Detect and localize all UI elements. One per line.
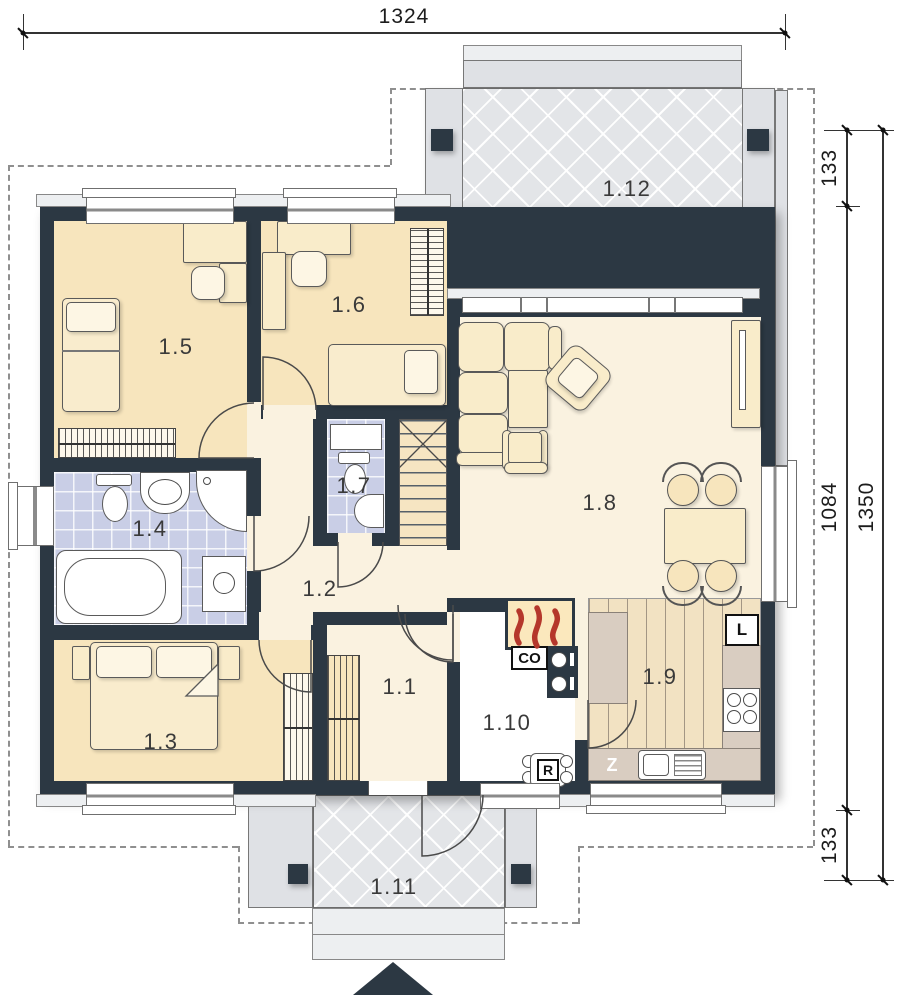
chimney-fireplace [505,598,575,650]
passage-living [447,550,460,598]
dimension-house-depth: 1084 [818,482,842,533]
sofa-cushion [458,322,504,372]
nightstand [72,646,90,680]
fridge-box: L [725,614,759,646]
room-label-1-9: 1.9 [642,664,677,690]
window-lip [787,460,797,608]
window-lip [82,805,236,815]
porch-pillar [511,864,531,884]
window-lip [586,805,726,814]
window-bedroom-1-5 [86,196,234,224]
room-label-1-5: 1.5 [158,334,193,360]
door-gap [259,612,311,640]
cooktop-burner [743,710,757,724]
door-gap [263,405,316,419]
nightstand [218,646,240,680]
terrace-pillar [431,129,453,151]
stairs [399,419,447,546]
fridge-label: L [737,620,747,640]
dimension-line-right-outer [882,130,884,880]
room-label-1-2: 1.2 [302,576,337,602]
window-bathroom-1-4 [16,486,54,546]
window-mullion [648,297,650,313]
porch-step [312,934,505,960]
dining-chair [705,474,737,506]
room-label-1-1: 1.1 [382,674,417,700]
dimension-line-right-inner [846,130,848,880]
front-door-threshold [368,781,428,795]
boiler-label-box: CO [511,646,548,670]
tv-sideboard-slot [739,330,746,410]
wardrobe [283,673,313,781]
bed-blanket-line [62,350,120,352]
eaves-outline-top-left [8,165,390,167]
east-eave-strip [775,90,788,466]
toilet-tank [338,452,370,464]
boiler-bar [570,677,574,690]
toilet-bowl [102,486,128,522]
kitchen-sink-bowl [643,754,669,776]
eaves-outline-bottom-right [578,846,813,848]
window-terrace-door-living [761,466,789,602]
dining-table [664,508,746,564]
bed-pillow [156,646,212,678]
wardrobe [327,655,360,781]
desk [183,221,247,263]
terrace-roof-band [463,60,742,88]
cooktop-burner [743,693,757,707]
porch-side-strip-left [248,795,313,908]
manifold-port [560,755,573,768]
dimension-total-depth: 1350 [855,482,879,533]
toilet-tank [96,474,132,486]
desk-chair [291,251,327,287]
wardrobe [410,228,444,316]
dining-chair [667,474,699,506]
window-mullion [674,297,676,313]
washbasin-bowl [148,479,182,505]
room-label-1-4: 1.4 [132,516,167,542]
eaves-outline-terrace-left [390,88,392,165]
boiler-label: CO [518,650,541,667]
kitchen-counter-left [588,612,628,704]
window-lip [8,482,18,550]
terrace-pillar [747,129,769,151]
room-label-1-8: 1.8 [582,490,617,516]
door-gap [247,516,261,571]
sofa-cushion [458,414,508,454]
dimension-line-top [23,32,785,34]
sink-label-wrap: Z [595,752,629,778]
washing-machine-drum [213,572,235,594]
distributor-label: R [543,762,553,778]
side-cabinet [262,252,286,330]
porch-step [312,908,505,935]
shower-head [203,477,211,485]
small-armchair-seat [508,432,542,464]
window-lip [82,188,236,198]
porch-side-strip-right [505,795,537,908]
dimension-porch-depth: 133 [818,826,842,864]
room-label-1-6: 1.6 [331,292,366,318]
eaves-outline-porch-left [238,846,240,924]
sofa-arm [456,452,508,466]
distributor-label-box: R [537,759,559,781]
room-label-1-12: 1.12 [603,176,652,202]
bathtub-inner [64,558,166,616]
floor-plan: 1324 133 1084 133 1350 [0,0,898,1000]
eaves-outline-porch-right [578,846,580,924]
small-armchair-back [504,462,548,474]
coffee-table [508,370,548,428]
window-mullion [546,297,548,313]
window-room-1-10 [480,783,560,809]
dimension-total-width: 1324 [379,5,430,29]
tv-sideboard [731,320,761,428]
bed-pillow [96,646,152,678]
window-mullion [520,297,522,313]
sofa-cushion [458,372,508,414]
bed-pillow [404,350,438,394]
cooktop-burner [727,693,741,707]
kitchen-sink-drainer [674,754,702,776]
wc-shelf [330,424,382,450]
window-lip [283,188,397,198]
glazed-wall-living-terrace [462,297,743,313]
desk [277,221,351,255]
door-gap [447,612,460,662]
entrance-arrow-icon [353,962,433,995]
eaves-outline-bottom-left [8,846,238,848]
sofa-cushion [504,322,550,372]
boiler-port [551,652,567,668]
door-gap [247,402,261,458]
bed-pillow [66,302,116,332]
small-washbasin [354,494,384,528]
room-label-1-10: 1.10 [483,710,532,736]
room-label-1-3: 1.3 [143,729,178,755]
door-gap [338,533,372,546]
boiler-port [551,676,567,692]
eaves-outline-right [813,88,815,846]
room-label-1-11: 1.11 [370,874,417,900]
room-label-1-7: 1.7 [336,473,371,499]
manifold-port [560,771,573,784]
cooktop-burner [727,710,741,724]
desk-chair [191,266,225,300]
dimension-terrace-depth: 133 [818,149,842,187]
wardrobe [58,428,176,458]
sink-label: Z [607,755,618,776]
window-bedroom-1-6 [287,196,395,224]
boiler-bar [570,653,574,666]
porch-pillar [288,864,308,884]
